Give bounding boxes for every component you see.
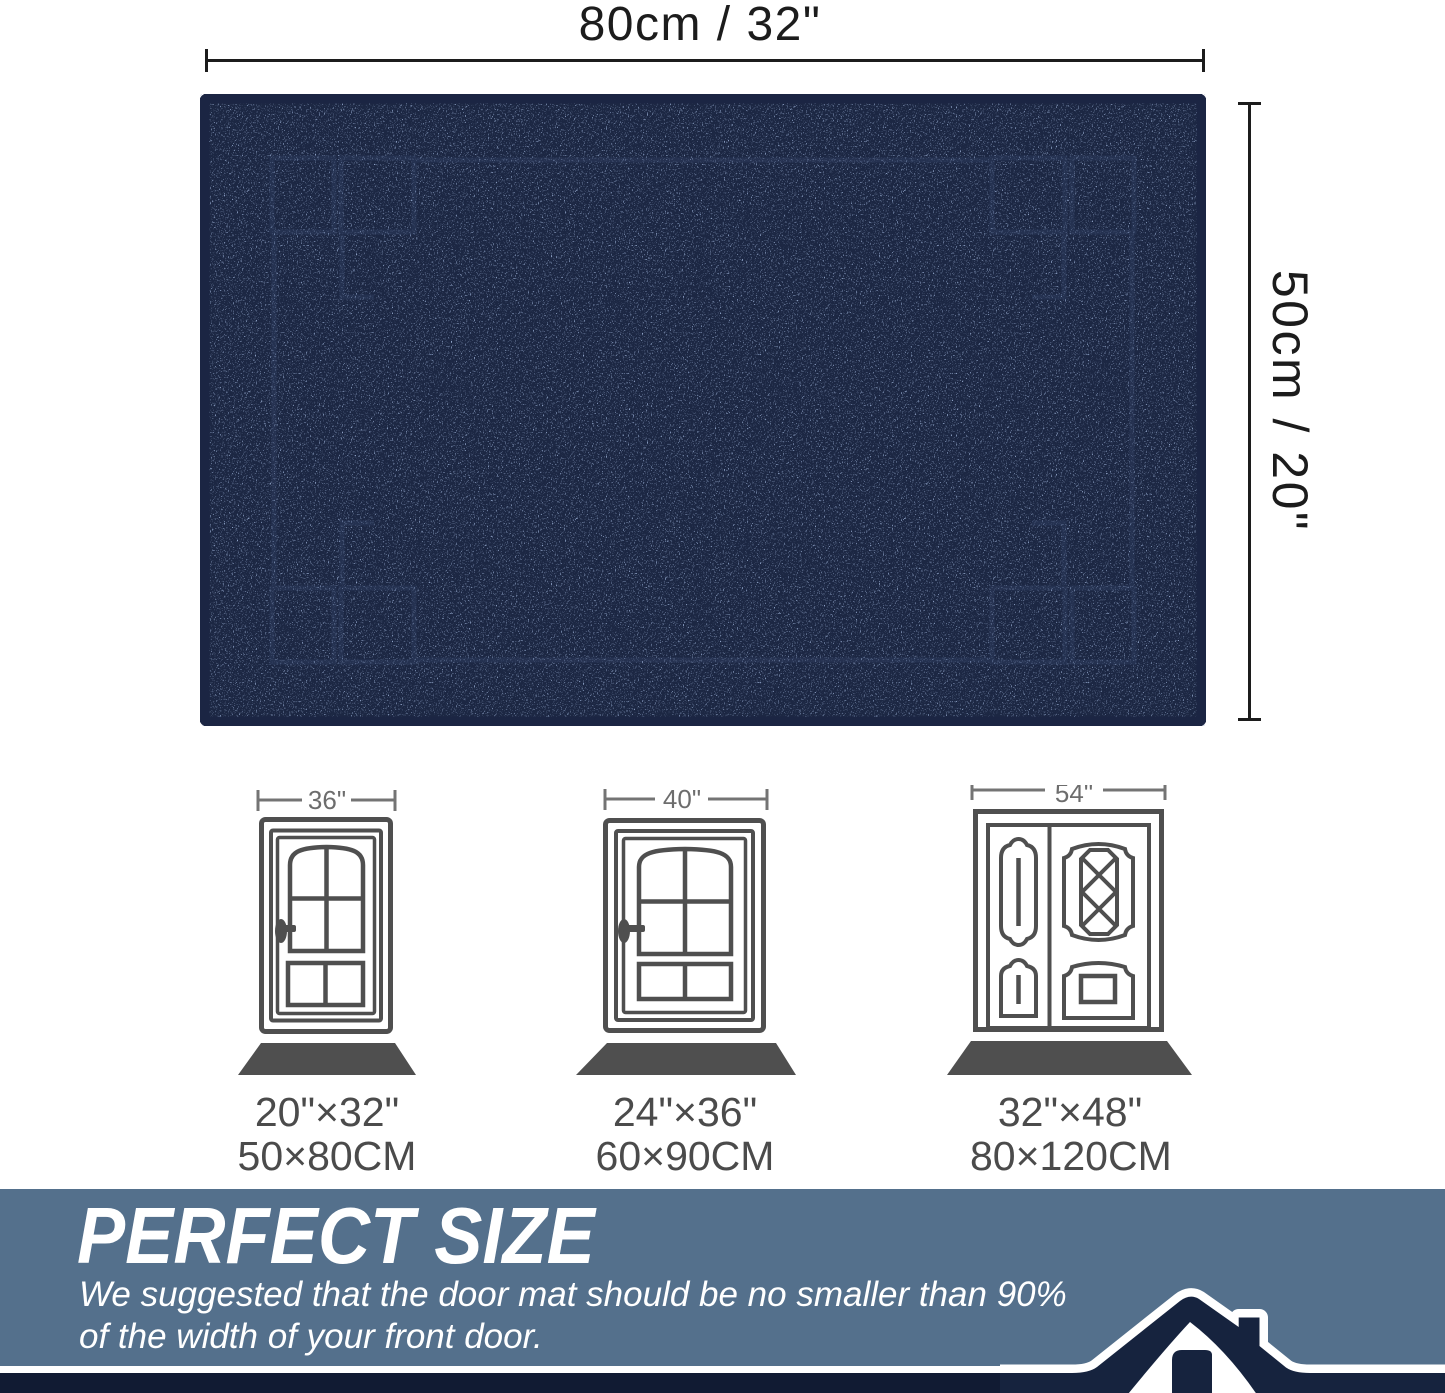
svg-text:36": 36" (308, 785, 346, 815)
svg-text:54": 54" (1055, 785, 1093, 808)
svg-text:40": 40" (663, 785, 701, 814)
